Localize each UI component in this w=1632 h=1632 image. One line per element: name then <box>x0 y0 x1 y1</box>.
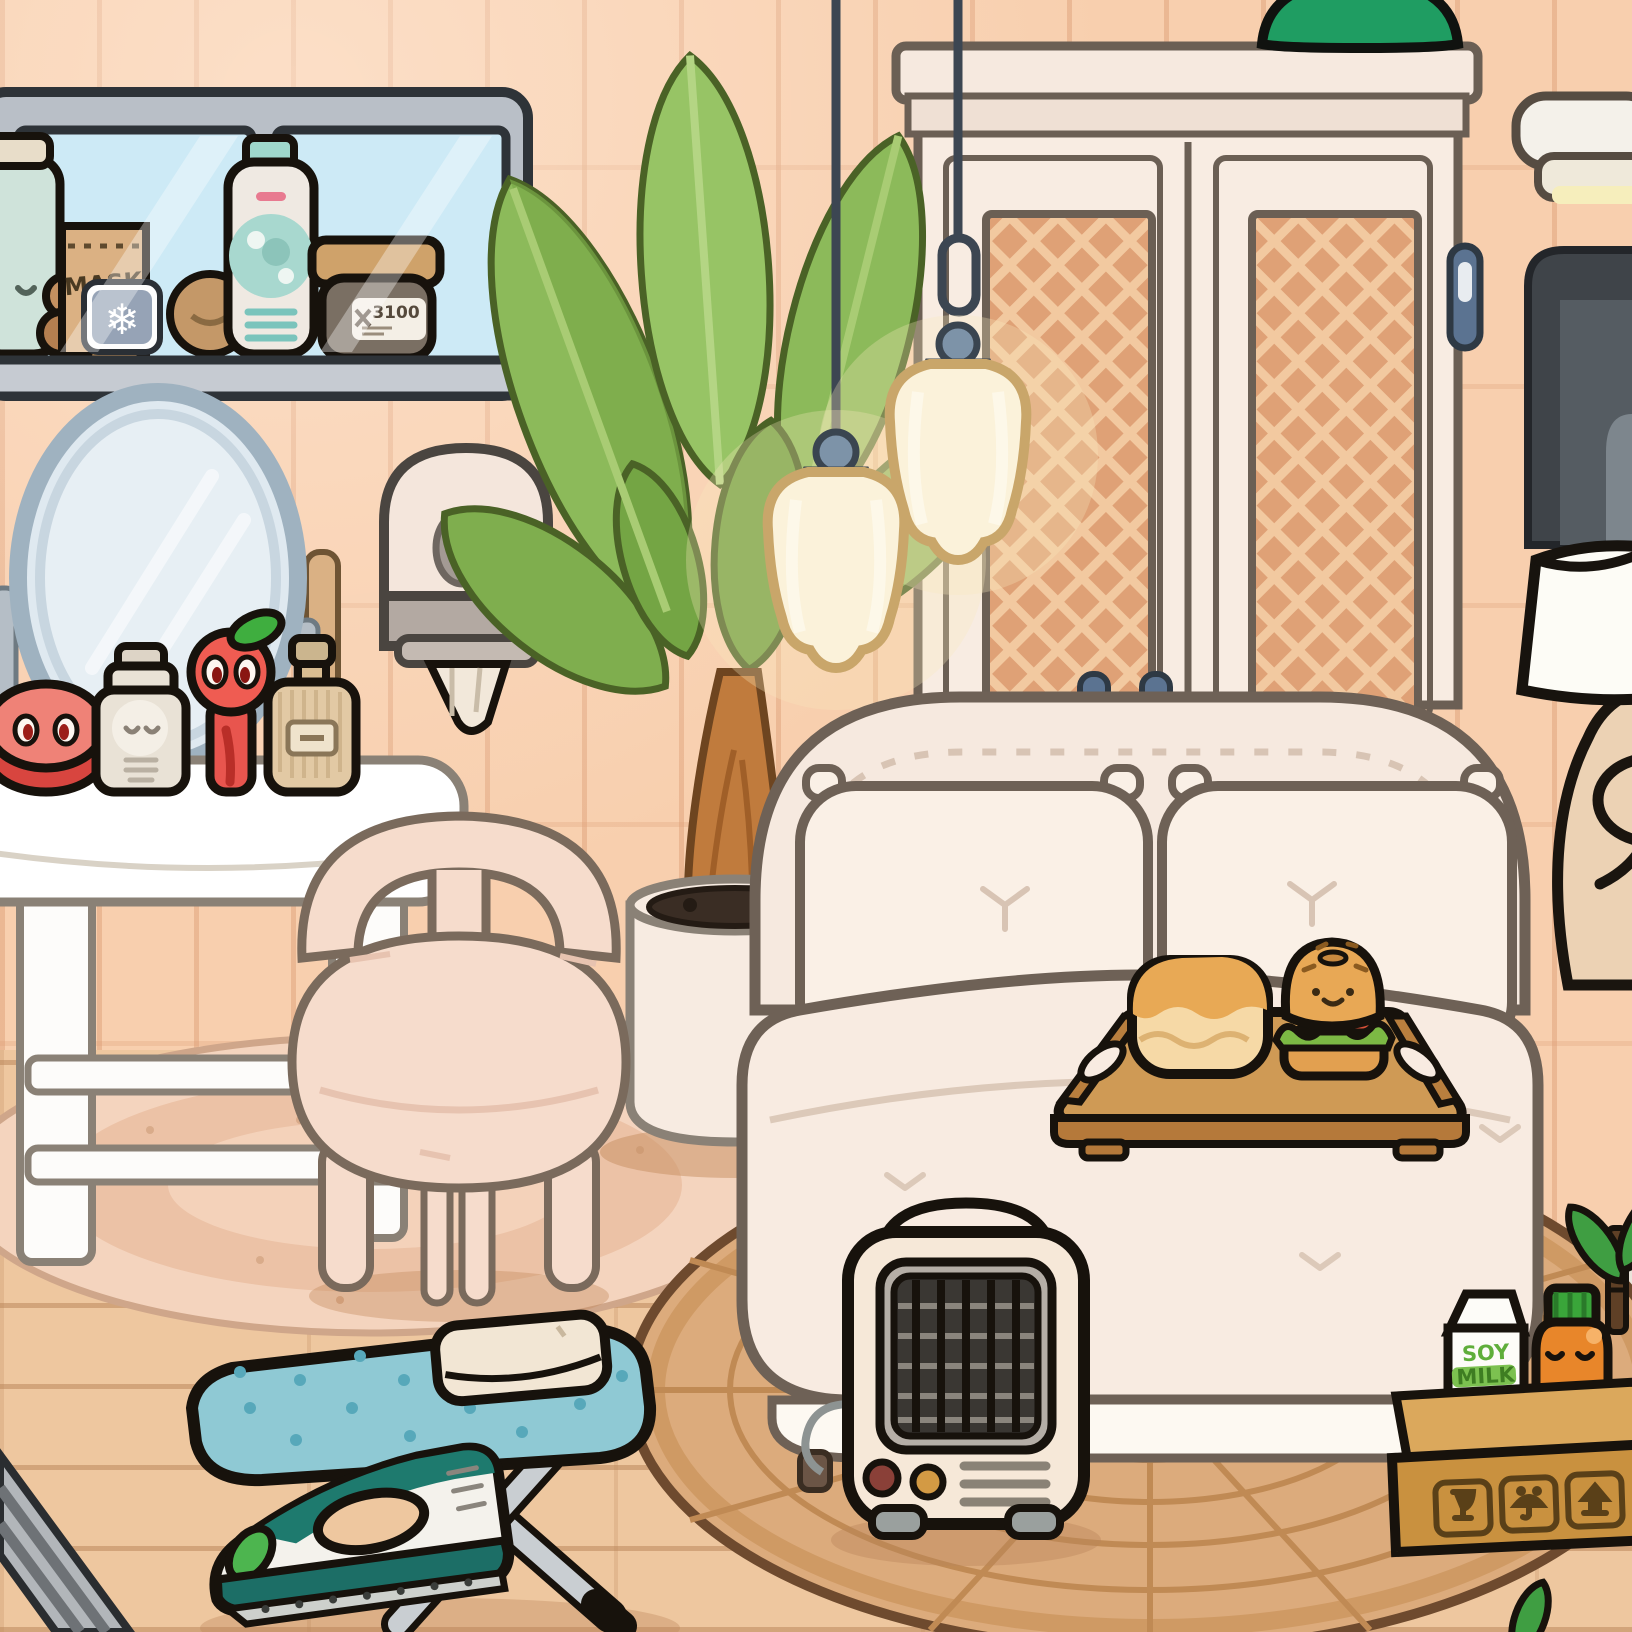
biscuit[interactable] <box>1132 957 1268 1074</box>
bagel-sandwich[interactable] <box>1276 942 1392 1076</box>
green-pot-on-wardrobe[interactable] <box>1262 0 1458 48</box>
folded-cloth[interactable] <box>433 1313 609 1404</box>
table-lamp[interactable] <box>1522 546 1632 985</box>
bedroom-scene: MASK ❄ <box>0 0 1632 1632</box>
corner-pole[interactable] <box>0 1455 130 1632</box>
dark-wall-panel <box>1528 250 1632 545</box>
heater-knob[interactable] <box>866 1462 898 1494</box>
stray-leaf <box>1503 1577 1557 1632</box>
rattan-panel-right <box>1252 214 1418 714</box>
lotion-bottle-face[interactable] <box>96 646 186 792</box>
soy-milk-carton[interactable]: SOY MILK <box>1448 1294 1524 1394</box>
lotion-bottle[interactable] <box>228 138 314 354</box>
red-compact[interactable] <box>0 684 104 792</box>
heater-knob[interactable] <box>913 1467 943 1497</box>
vanity-stool[interactable] <box>292 816 626 1322</box>
wall-cabinet[interactable]: MASK ❄ <box>0 92 528 396</box>
wardrobe-hinge <box>1450 246 1480 348</box>
wall-sconce[interactable] <box>1516 96 1632 204</box>
juice-bottle[interactable] <box>1536 1288 1608 1392</box>
